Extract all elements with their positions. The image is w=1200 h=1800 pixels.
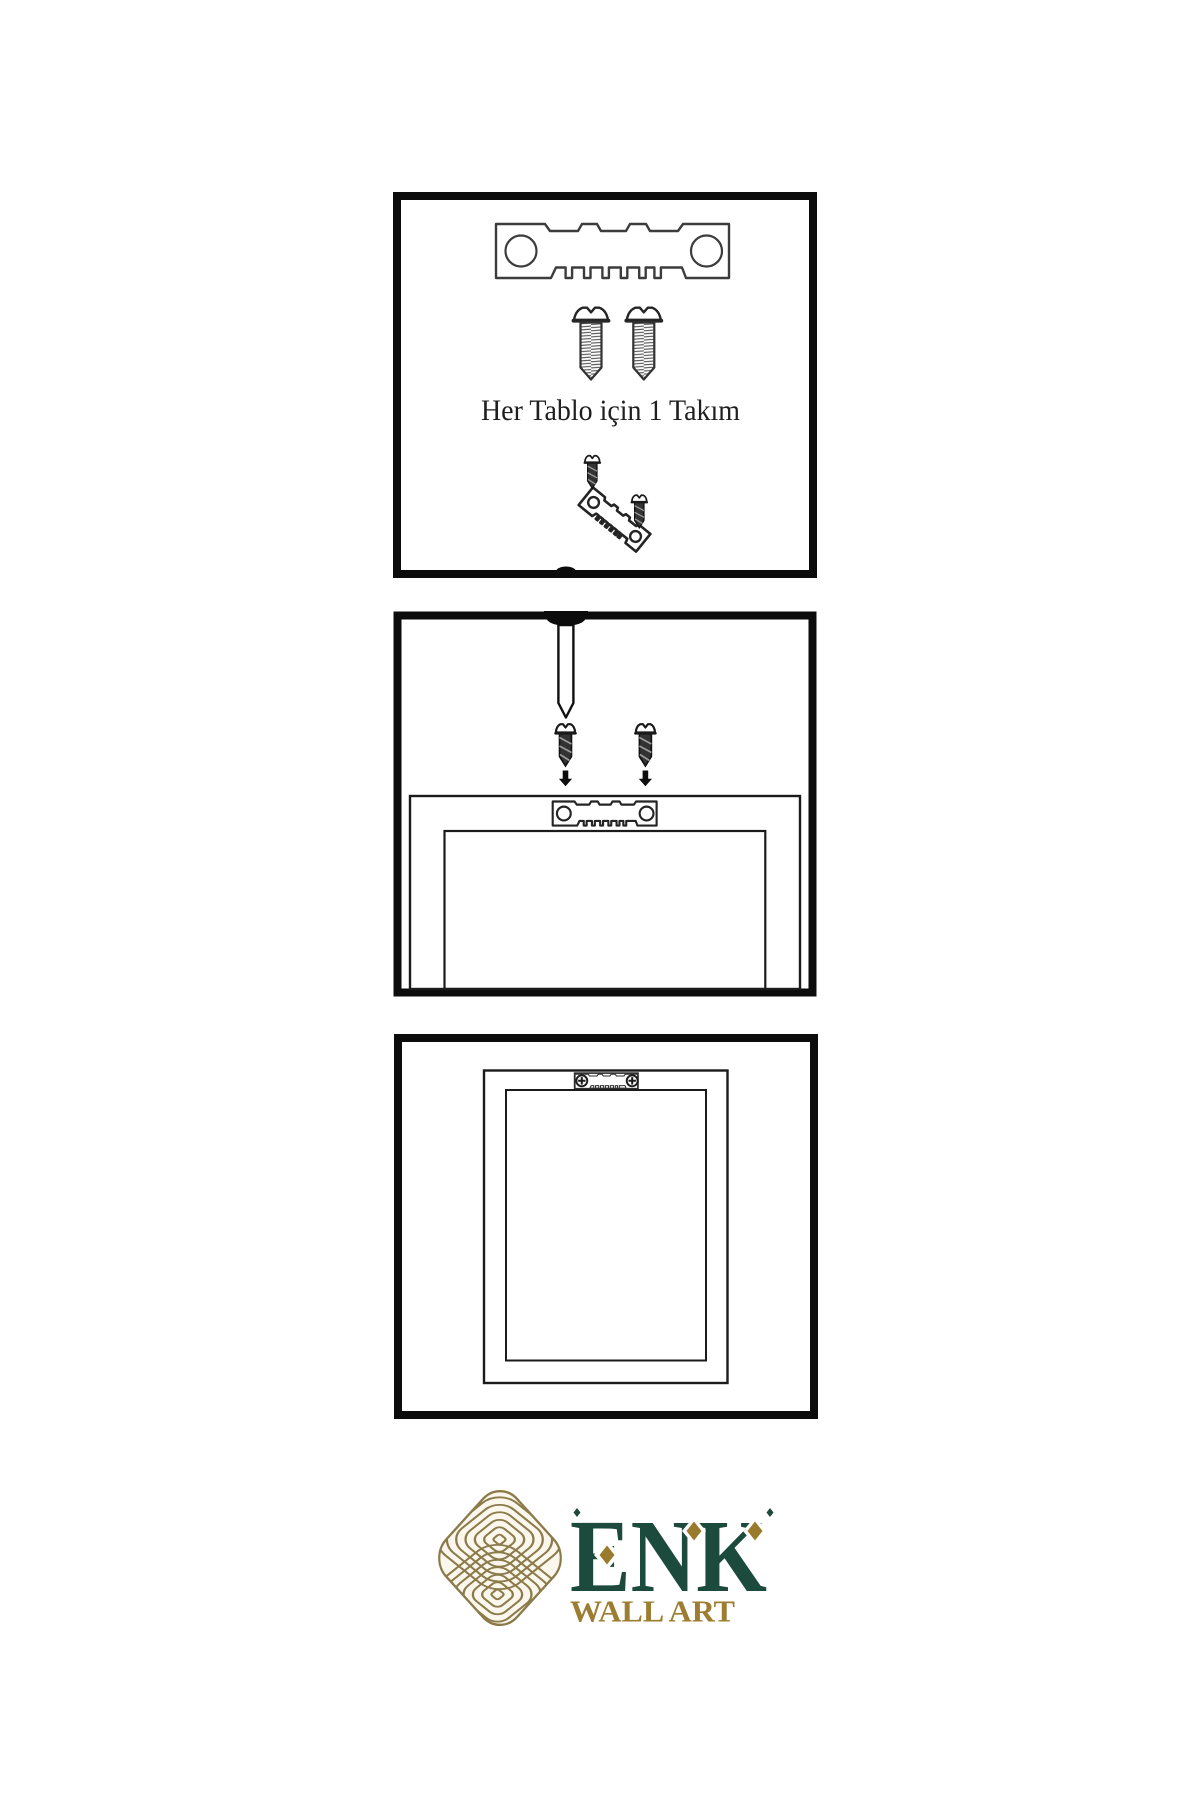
svg-text:Her Tablo için 1 Takım: Her Tablo için 1 Takım bbox=[481, 394, 740, 427]
svg-text:WALL ART: WALL ART bbox=[570, 1594, 735, 1629]
